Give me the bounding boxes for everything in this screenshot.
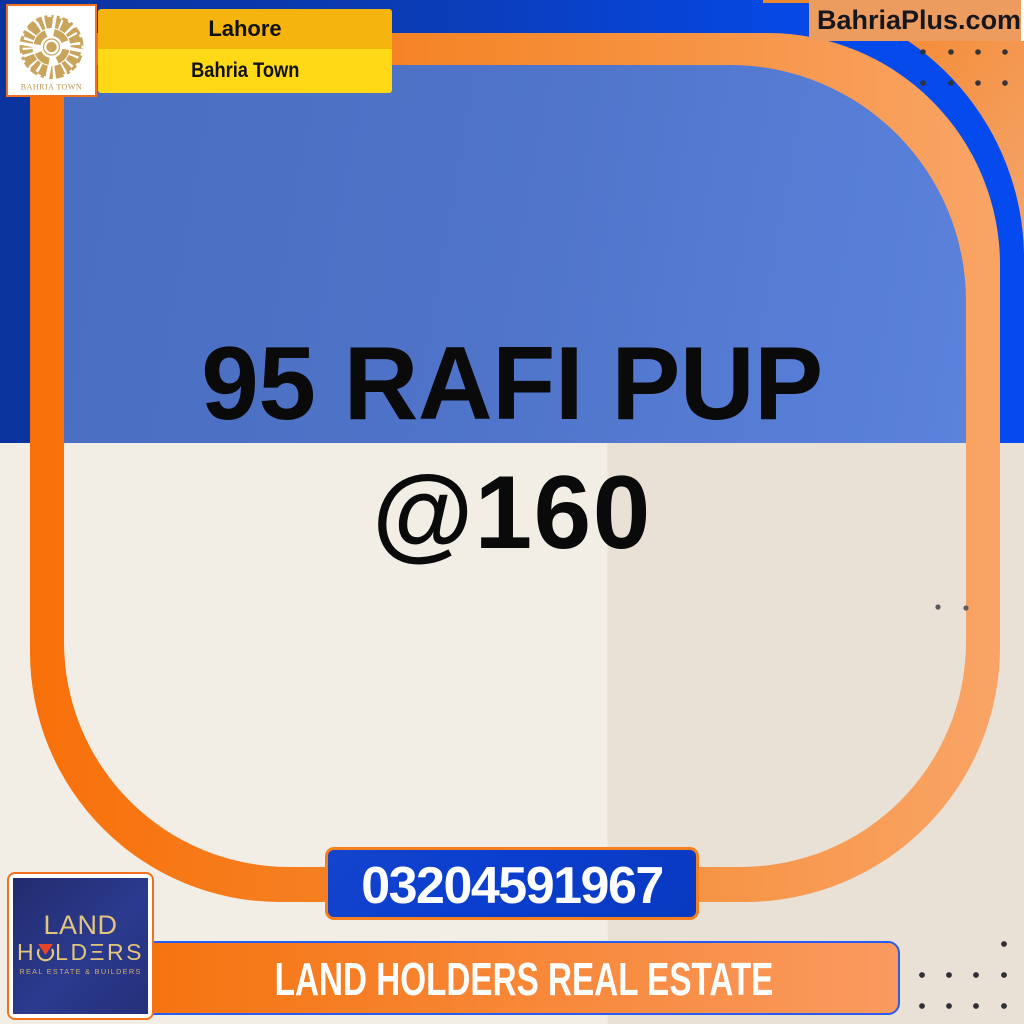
svg-text:BAHRIA TOWN: BAHRIA TOWN xyxy=(21,83,82,92)
